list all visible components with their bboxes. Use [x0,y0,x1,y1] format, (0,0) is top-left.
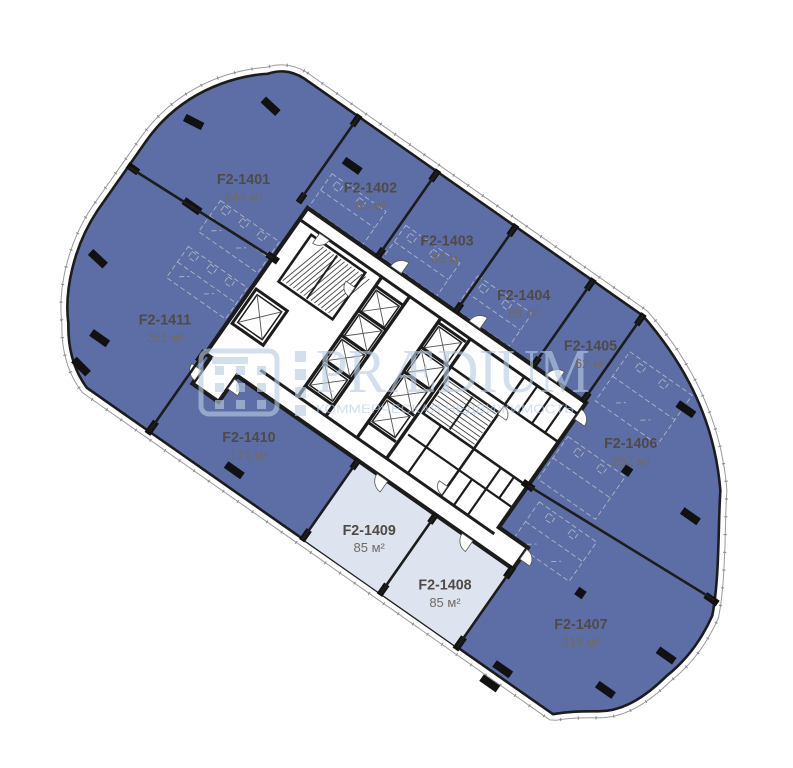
svg-text:85 м²: 85 м² [354,540,386,555]
svg-text:F2-1411: F2-1411 [139,313,192,329]
svg-text:319 м²: 319 м² [562,634,601,649]
svg-text:F2-1410: F2-1410 [222,430,275,446]
svg-text:85 м²: 85 м² [429,595,461,610]
svg-text:85 м²: 85 м² [431,251,463,266]
svg-text:PRÆDIUM: PRÆDIUM [316,338,590,406]
svg-text:F2-1406: F2-1406 [604,436,657,452]
svg-text:62 м²: 62 м² [575,356,607,371]
svg-text:F2-1409: F2-1409 [343,523,396,539]
svg-text:171 м²: 171 м² [230,447,269,462]
svg-text:85 м²: 85 м² [508,306,540,321]
svg-text:F2-1408: F2-1408 [418,578,471,594]
svg-text:251 м²: 251 м² [146,330,185,345]
svg-text:F2-1404: F2-1404 [497,288,550,304]
svg-text:F2-1402: F2-1402 [344,180,397,196]
svg-text:244 м²: 244 м² [224,189,263,204]
svg-text:F2-1405: F2-1405 [564,339,617,355]
svg-text:252 м²: 252 м² [611,454,650,469]
svg-text:85 м²: 85 м² [355,198,387,213]
svg-text:F2-1401: F2-1401 [217,172,270,188]
svg-text:F2-1407: F2-1407 [554,617,607,633]
svg-text:F2-1403: F2-1403 [420,234,473,250]
svg-text:КОММЕРЧЕСКАЯ НЕДВИЖИМОСТЬ: КОММЕРЧЕСКАЯ НЕДВИЖИМОСТЬ [316,402,574,416]
